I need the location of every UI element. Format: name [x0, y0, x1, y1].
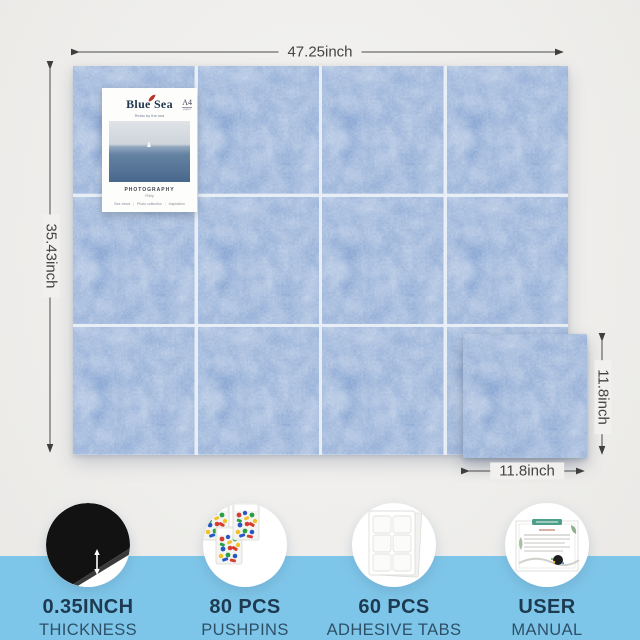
felt-tile	[447, 197, 569, 325]
feature-value: 0.35INCH	[8, 596, 168, 619]
felt-texture	[322, 66, 444, 194]
felt-tile	[198, 66, 320, 194]
feature-label: MANUAL	[467, 621, 627, 640]
felt-tile	[322, 327, 444, 455]
poster-caption-sub: Philip	[109, 194, 190, 198]
poster-header: Blue Sea A4 paper	[109, 97, 190, 112]
adhesive-tabs-icon	[352, 503, 436, 587]
single-tile	[463, 334, 587, 458]
felt-texture	[198, 66, 320, 194]
felt-tile	[447, 66, 569, 194]
poster-footer: Sea views | Photo collection | Inspirati…	[109, 202, 190, 206]
felt-tile	[322, 66, 444, 194]
felt-tile	[73, 197, 195, 325]
feature-value: 80 PCS	[165, 596, 325, 619]
feature-thickness: 0.35INCH THICKNESS	[8, 503, 168, 640]
feature-value: USER	[467, 596, 627, 619]
felt-tile	[198, 327, 320, 455]
thickness-icon	[46, 503, 130, 587]
felt-texture	[198, 197, 320, 325]
felt-texture	[447, 66, 569, 194]
poster-card: Blue Sea A4 paper Relax by the sea PHOTO…	[102, 88, 197, 212]
board-height-label: 35.43inch	[43, 214, 60, 297]
feature-label: THICKNESS	[8, 621, 168, 640]
felt-tile	[73, 327, 195, 455]
user-manual-icon	[505, 503, 589, 587]
poster-footer-item: Inspiration	[169, 202, 185, 206]
felt-texture	[198, 327, 320, 455]
pushpins-icon	[203, 503, 287, 587]
red-leaf-icon	[148, 94, 157, 102]
feature-adhesive-tabs: 60 PCS ADHESIVE TABS	[314, 503, 474, 640]
felt-texture	[322, 197, 444, 325]
poster-footer-item: Sea views	[114, 202, 130, 206]
poster-footer-item: Photo collection	[137, 202, 162, 206]
a4-sublabel: paper	[182, 108, 192, 111]
feature-value: 60 PCS	[314, 596, 474, 619]
felt-texture	[73, 327, 195, 455]
felt-texture	[463, 334, 587, 458]
poster-subtitle: Relax by the sea	[109, 113, 190, 118]
feature-pushpins: 80 PCS PUSHPINS	[165, 503, 325, 640]
poster-caption: PHOTOGRAPHY	[109, 187, 190, 193]
felt-texture	[73, 197, 195, 325]
footer-divider: |	[133, 202, 134, 206]
feature-label: PUSHPINS	[165, 621, 325, 640]
feature-label: ADHESIVE TABS	[314, 621, 474, 640]
felt-tile	[322, 197, 444, 325]
feature-user-manual: USER MANUAL	[467, 503, 627, 640]
sailboat-icon	[147, 141, 151, 147]
footer-divider: |	[165, 202, 166, 206]
tile-width-label: 11.8inch	[490, 463, 564, 480]
felt-tile	[198, 197, 320, 325]
product-infographic: 47.25inch 35.43inch 11.8inch 11.8inch Bl…	[0, 0, 640, 640]
poster-a4-badge: A4 paper	[182, 99, 192, 111]
felt-texture	[322, 327, 444, 455]
sea-photo	[109, 121, 190, 182]
board-width-label: 47.25inch	[278, 44, 361, 61]
tile-height-label: 11.8inch	[595, 360, 612, 434]
felt-texture	[447, 197, 569, 325]
